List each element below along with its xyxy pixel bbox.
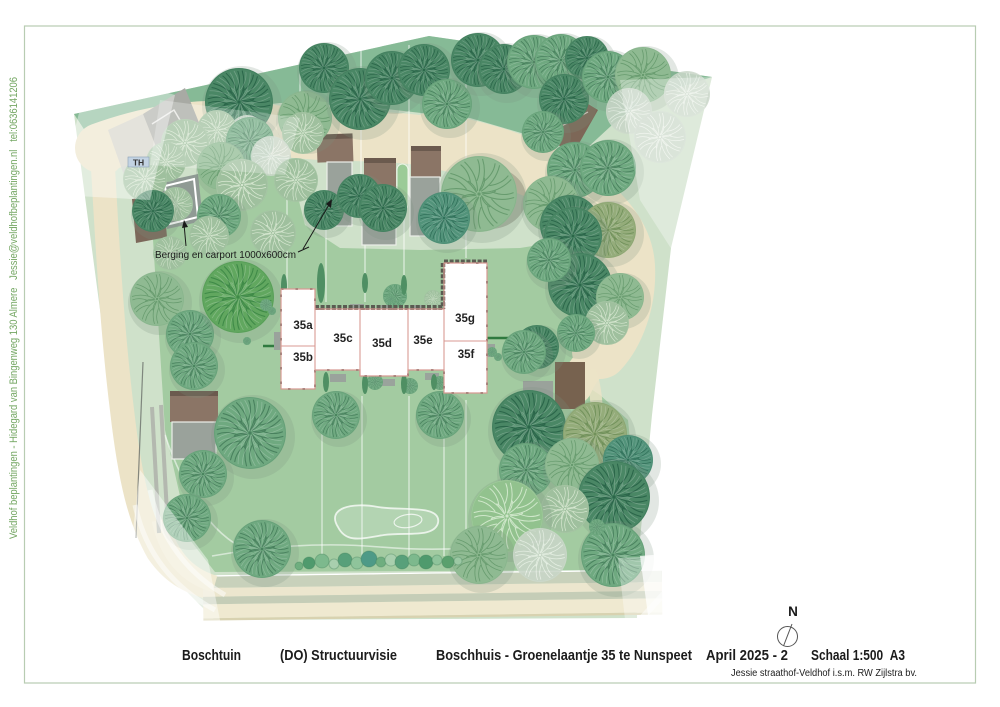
svg-text:Boschtuin: Boschtuin [182,647,241,664]
svg-text:35e: 35e [413,335,432,347]
svg-text:35d: 35d [372,338,392,350]
svg-text:35f: 35f [458,349,475,361]
svg-text:Jessie straathof-Veldhof i.s.m: Jessie straathof-Veldhof i.s.m. RW Zijls… [731,668,917,679]
svg-text:Berging en carport 1000x600cm: Berging en carport 1000x600cm [155,249,296,261]
svg-text:April 2025 - 2: April 2025 - 2 [706,647,788,664]
svg-text:35a: 35a [293,320,313,332]
svg-text:35b: 35b [293,352,313,364]
svg-text:Boschhuis - Groenelaantje 35 t: Boschhuis - Groenelaantje 35 te Nunspeet [436,647,692,664]
svg-text:35c: 35c [333,333,353,345]
svg-text:TH: TH [133,158,144,168]
svg-text:(DO) Structuurvisie: (DO) Structuurvisie [280,647,397,664]
svg-text:Schaal 1:500 A3: Schaal 1:500 A3 [811,647,905,664]
svg-text:N: N [788,604,798,619]
svg-text:Veldhof beplantingen - Hidegar: Veldhof beplantingen - Hidegard van Bing… [8,77,20,539]
svg-text:35g: 35g [455,313,475,325]
